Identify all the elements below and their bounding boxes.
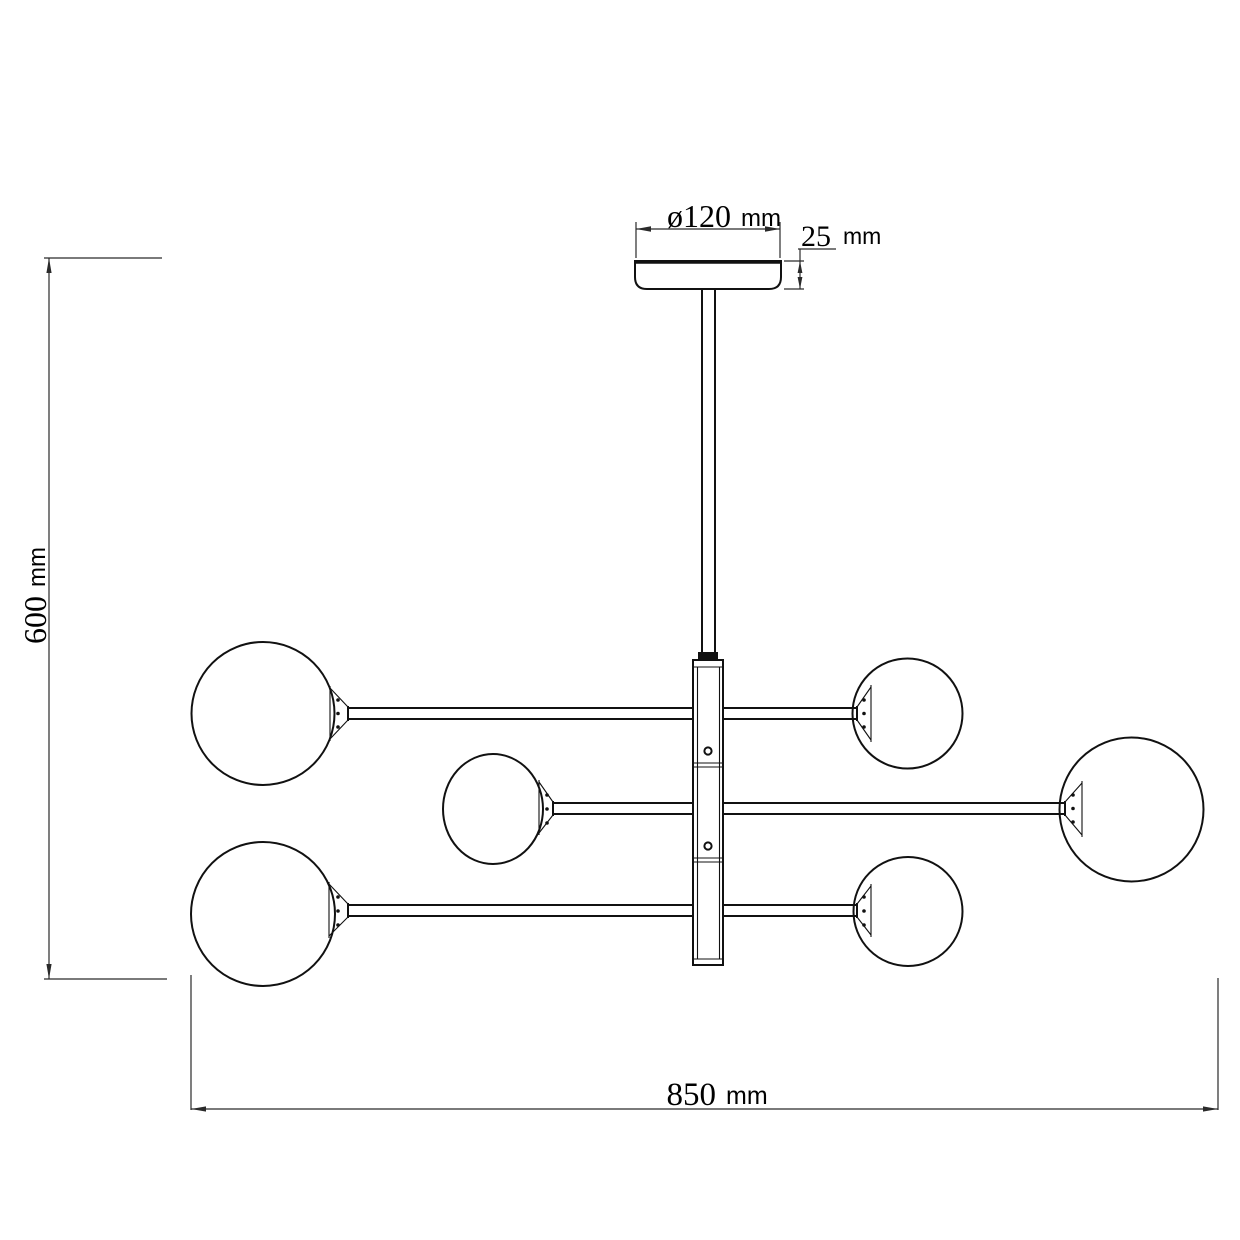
canopy-diameter-unit: mm [741, 205, 781, 232]
dim-overall-width: 850 mm [191, 975, 1218, 1113]
globe-middle-left [443, 754, 543, 864]
column-screw-bottom [704, 842, 711, 849]
overall-width-value: 850 [667, 1077, 717, 1113]
dim-canopy-height: 25 mm [784, 220, 881, 289]
arrow-left-icon [636, 226, 651, 231]
arm-row-bottom [348, 903, 857, 918]
socket-bottom-right [857, 884, 871, 937]
overall-height-unit: mm [24, 547, 51, 587]
arrow-up-icon [46, 258, 51, 273]
arm-row-middle [553, 801, 1065, 816]
arrow-down-icon [798, 277, 803, 289]
globe-top-right [853, 659, 963, 769]
dim-canopy-diameter: ø120 mm [636, 198, 781, 258]
ceiling-canopy [634, 261, 782, 289]
globe-bottom-left [191, 842, 335, 986]
globe-middle-right [1060, 738, 1204, 882]
canopy-height-unit: mm [843, 223, 881, 249]
dim-overall-height: 600 mm [17, 258, 167, 979]
canopy-diameter-value: ø120 [667, 198, 731, 234]
arrow-up-icon [798, 261, 803, 273]
arm-row-top [348, 706, 857, 721]
overall-width-unit: mm [726, 1082, 768, 1110]
globe-top-left [192, 642, 335, 785]
canopy-height-value: 25 [801, 220, 831, 253]
overall-height-value: 600 [17, 596, 53, 644]
stem-connector-band [698, 652, 718, 659]
socket-middle-right [1065, 781, 1082, 837]
arrow-left-icon [191, 1106, 206, 1111]
column-screw-top [704, 747, 711, 754]
chandelier-technical-drawing: ø120 mm 25 mm 600 mm 850 mm [0, 0, 1240, 1240]
center-column [693, 660, 723, 965]
socket-top-right [857, 685, 871, 742]
arrow-right-icon [1203, 1106, 1218, 1111]
drawing-canvas: ø120 mm 25 mm 600 mm 850 mm [0, 0, 1240, 1240]
arrow-down-icon [46, 964, 51, 979]
globe-bottom-right [854, 857, 963, 966]
stem-rod [698, 290, 718, 659]
